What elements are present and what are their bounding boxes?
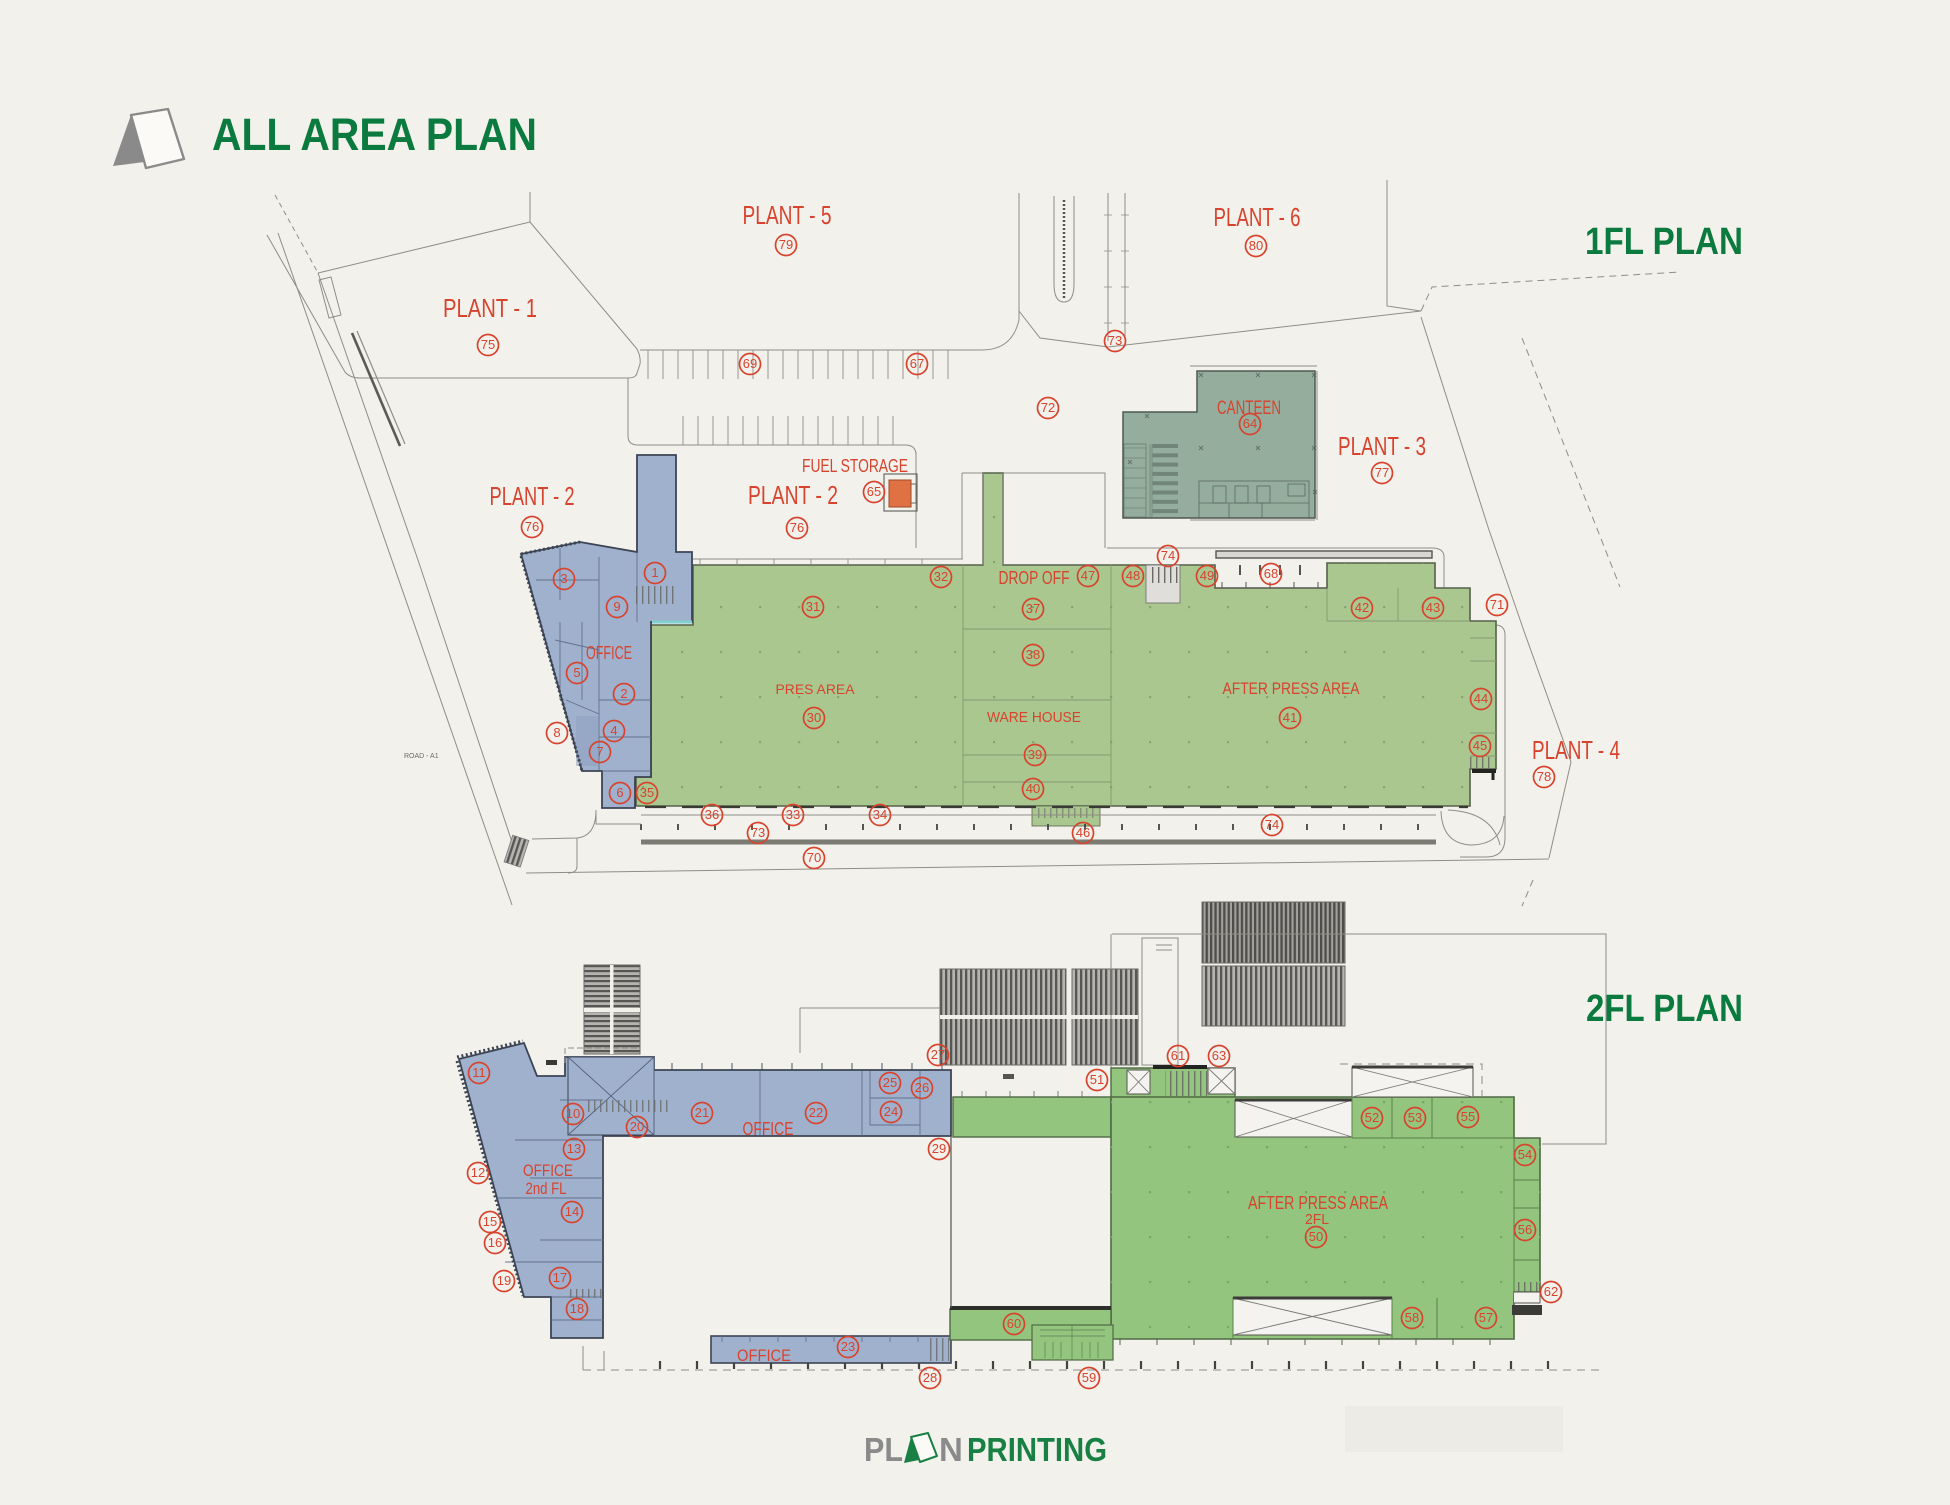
svg-text:44: 44 bbox=[1474, 691, 1488, 706]
svg-text:WARE HOUSE: WARE HOUSE bbox=[987, 709, 1081, 726]
svg-text:2FL PLAN: 2FL PLAN bbox=[1586, 988, 1743, 1030]
svg-text:22: 22 bbox=[809, 1105, 823, 1120]
svg-text:50: 50 bbox=[1309, 1229, 1323, 1244]
svg-text:62: 62 bbox=[1544, 1284, 1558, 1299]
svg-text:PLANT - 2: PLANT - 2 bbox=[490, 481, 575, 511]
svg-text:31: 31 bbox=[806, 599, 820, 614]
svg-text:17: 17 bbox=[553, 1270, 567, 1285]
svg-text:OFFICE: OFFICE bbox=[586, 643, 632, 663]
svg-text:48: 48 bbox=[1126, 568, 1140, 583]
svg-text:46: 46 bbox=[1076, 825, 1090, 840]
svg-text:2nd FL: 2nd FL bbox=[526, 1179, 567, 1198]
svg-text:24: 24 bbox=[884, 1104, 898, 1119]
svg-text:25: 25 bbox=[883, 1075, 897, 1090]
svg-text:35: 35 bbox=[640, 785, 654, 800]
svg-text:78: 78 bbox=[1537, 769, 1551, 784]
svg-text:56: 56 bbox=[1518, 1222, 1532, 1237]
svg-text:72: 72 bbox=[1041, 400, 1055, 415]
svg-text:PLANT - 4: PLANT - 4 bbox=[1532, 735, 1620, 765]
svg-text:28: 28 bbox=[923, 1370, 937, 1385]
svg-text:71: 71 bbox=[1490, 597, 1504, 612]
svg-text:55: 55 bbox=[1461, 1109, 1475, 1124]
svg-text:PLANT - 1: PLANT - 1 bbox=[443, 293, 537, 323]
svg-text:16: 16 bbox=[488, 1235, 502, 1250]
svg-text:74: 74 bbox=[1161, 548, 1175, 563]
svg-text:ALL AREA PLAN: ALL AREA PLAN bbox=[212, 109, 537, 160]
svg-text:80: 80 bbox=[1249, 238, 1263, 253]
svg-text:DROP OFF: DROP OFF bbox=[999, 568, 1070, 588]
svg-text:65: 65 bbox=[867, 484, 881, 499]
svg-text:57: 57 bbox=[1479, 1310, 1493, 1325]
svg-text:45: 45 bbox=[1473, 738, 1487, 753]
svg-text:FUEL STORAGE: FUEL STORAGE bbox=[802, 456, 908, 476]
svg-text:21: 21 bbox=[695, 1105, 709, 1120]
svg-text:49: 49 bbox=[1200, 568, 1214, 583]
svg-text:38: 38 bbox=[1026, 647, 1040, 662]
svg-text:41: 41 bbox=[1283, 710, 1297, 725]
svg-text:15: 15 bbox=[483, 1214, 497, 1229]
svg-text:PRES AREA: PRES AREA bbox=[776, 681, 856, 697]
svg-text:10: 10 bbox=[566, 1106, 580, 1121]
svg-text:73: 73 bbox=[751, 825, 765, 840]
svg-text:60: 60 bbox=[1007, 1316, 1021, 1331]
svg-text:27: 27 bbox=[931, 1047, 945, 1062]
svg-text:5: 5 bbox=[573, 665, 580, 680]
svg-text:77: 77 bbox=[1375, 465, 1389, 480]
svg-text:70: 70 bbox=[807, 850, 821, 865]
svg-text:PLANT - 2: PLANT - 2 bbox=[748, 480, 838, 510]
svg-text:26: 26 bbox=[915, 1080, 929, 1095]
svg-text:40: 40 bbox=[1026, 781, 1040, 796]
svg-text:PLANT - 5: PLANT - 5 bbox=[743, 200, 832, 230]
svg-text:18: 18 bbox=[570, 1301, 584, 1316]
svg-text:20: 20 bbox=[630, 1119, 644, 1134]
svg-text:9: 9 bbox=[613, 599, 620, 614]
svg-text:OFFICE: OFFICE bbox=[737, 1346, 791, 1365]
svg-text:39: 39 bbox=[1028, 747, 1042, 762]
svg-text:OFFICE: OFFICE bbox=[523, 1161, 573, 1180]
svg-text:6: 6 bbox=[616, 785, 623, 800]
svg-text:53: 53 bbox=[1408, 1110, 1422, 1125]
svg-text:37: 37 bbox=[1026, 601, 1040, 616]
svg-text:PLANT - 6: PLANT - 6 bbox=[1214, 202, 1301, 232]
svg-text:2FL: 2FL bbox=[1305, 1211, 1329, 1228]
svg-text:76: 76 bbox=[525, 519, 539, 534]
svg-text:13: 13 bbox=[567, 1141, 581, 1156]
svg-text:33: 33 bbox=[786, 807, 800, 822]
svg-text:51: 51 bbox=[1090, 1072, 1104, 1087]
svg-text:3: 3 bbox=[560, 571, 567, 586]
svg-text:19: 19 bbox=[497, 1273, 511, 1288]
svg-text:67: 67 bbox=[910, 356, 924, 371]
svg-text:PL: PL bbox=[864, 1431, 903, 1468]
svg-text:61: 61 bbox=[1171, 1048, 1185, 1063]
svg-text:75: 75 bbox=[481, 337, 495, 352]
svg-text:PLANT - 3: PLANT - 3 bbox=[1338, 431, 1426, 461]
svg-text:12: 12 bbox=[471, 1165, 485, 1180]
svg-text:OFFICE: OFFICE bbox=[743, 1119, 794, 1139]
svg-text:14: 14 bbox=[565, 1204, 579, 1219]
svg-text:1FL PLAN: 1FL PLAN bbox=[1585, 221, 1743, 263]
svg-text:43: 43 bbox=[1426, 600, 1440, 615]
svg-text:1: 1 bbox=[651, 565, 658, 580]
svg-text:59: 59 bbox=[1082, 1370, 1096, 1385]
svg-text:76: 76 bbox=[790, 520, 804, 535]
svg-text:79: 79 bbox=[779, 237, 793, 252]
svg-text:4: 4 bbox=[610, 723, 617, 738]
svg-text:29: 29 bbox=[932, 1141, 946, 1156]
svg-text:AFTER PRESS AREA: AFTER PRESS AREA bbox=[1223, 679, 1361, 698]
svg-text:54: 54 bbox=[1518, 1147, 1532, 1162]
svg-text:N: N bbox=[939, 1431, 963, 1468]
svg-text:AFTER PRESS AREA: AFTER PRESS AREA bbox=[1248, 1193, 1388, 1213]
svg-text:32: 32 bbox=[934, 569, 948, 584]
svg-text:34: 34 bbox=[873, 807, 887, 822]
svg-text:63: 63 bbox=[1212, 1048, 1226, 1063]
svg-text:ROAD - A1: ROAD - A1 bbox=[404, 753, 439, 760]
svg-text:8: 8 bbox=[553, 725, 560, 740]
svg-text:73: 73 bbox=[1108, 333, 1122, 348]
svg-text:PRINTING: PRINTING bbox=[967, 1431, 1107, 1468]
svg-text:68: 68 bbox=[1264, 566, 1278, 581]
svg-text:69: 69 bbox=[743, 356, 757, 371]
svg-text:74: 74 bbox=[1265, 817, 1279, 832]
svg-text:47: 47 bbox=[1081, 568, 1095, 583]
svg-text:7: 7 bbox=[596, 744, 603, 759]
svg-text:11: 11 bbox=[472, 1065, 486, 1080]
svg-text:2: 2 bbox=[620, 686, 627, 701]
svg-text:42: 42 bbox=[1355, 600, 1369, 615]
svg-text:58: 58 bbox=[1405, 1310, 1419, 1325]
svg-text:36: 36 bbox=[705, 807, 719, 822]
svg-text:30: 30 bbox=[807, 710, 821, 725]
svg-text:64: 64 bbox=[1243, 416, 1257, 431]
svg-text:52: 52 bbox=[1365, 1110, 1379, 1125]
svg-text:23: 23 bbox=[841, 1339, 855, 1354]
